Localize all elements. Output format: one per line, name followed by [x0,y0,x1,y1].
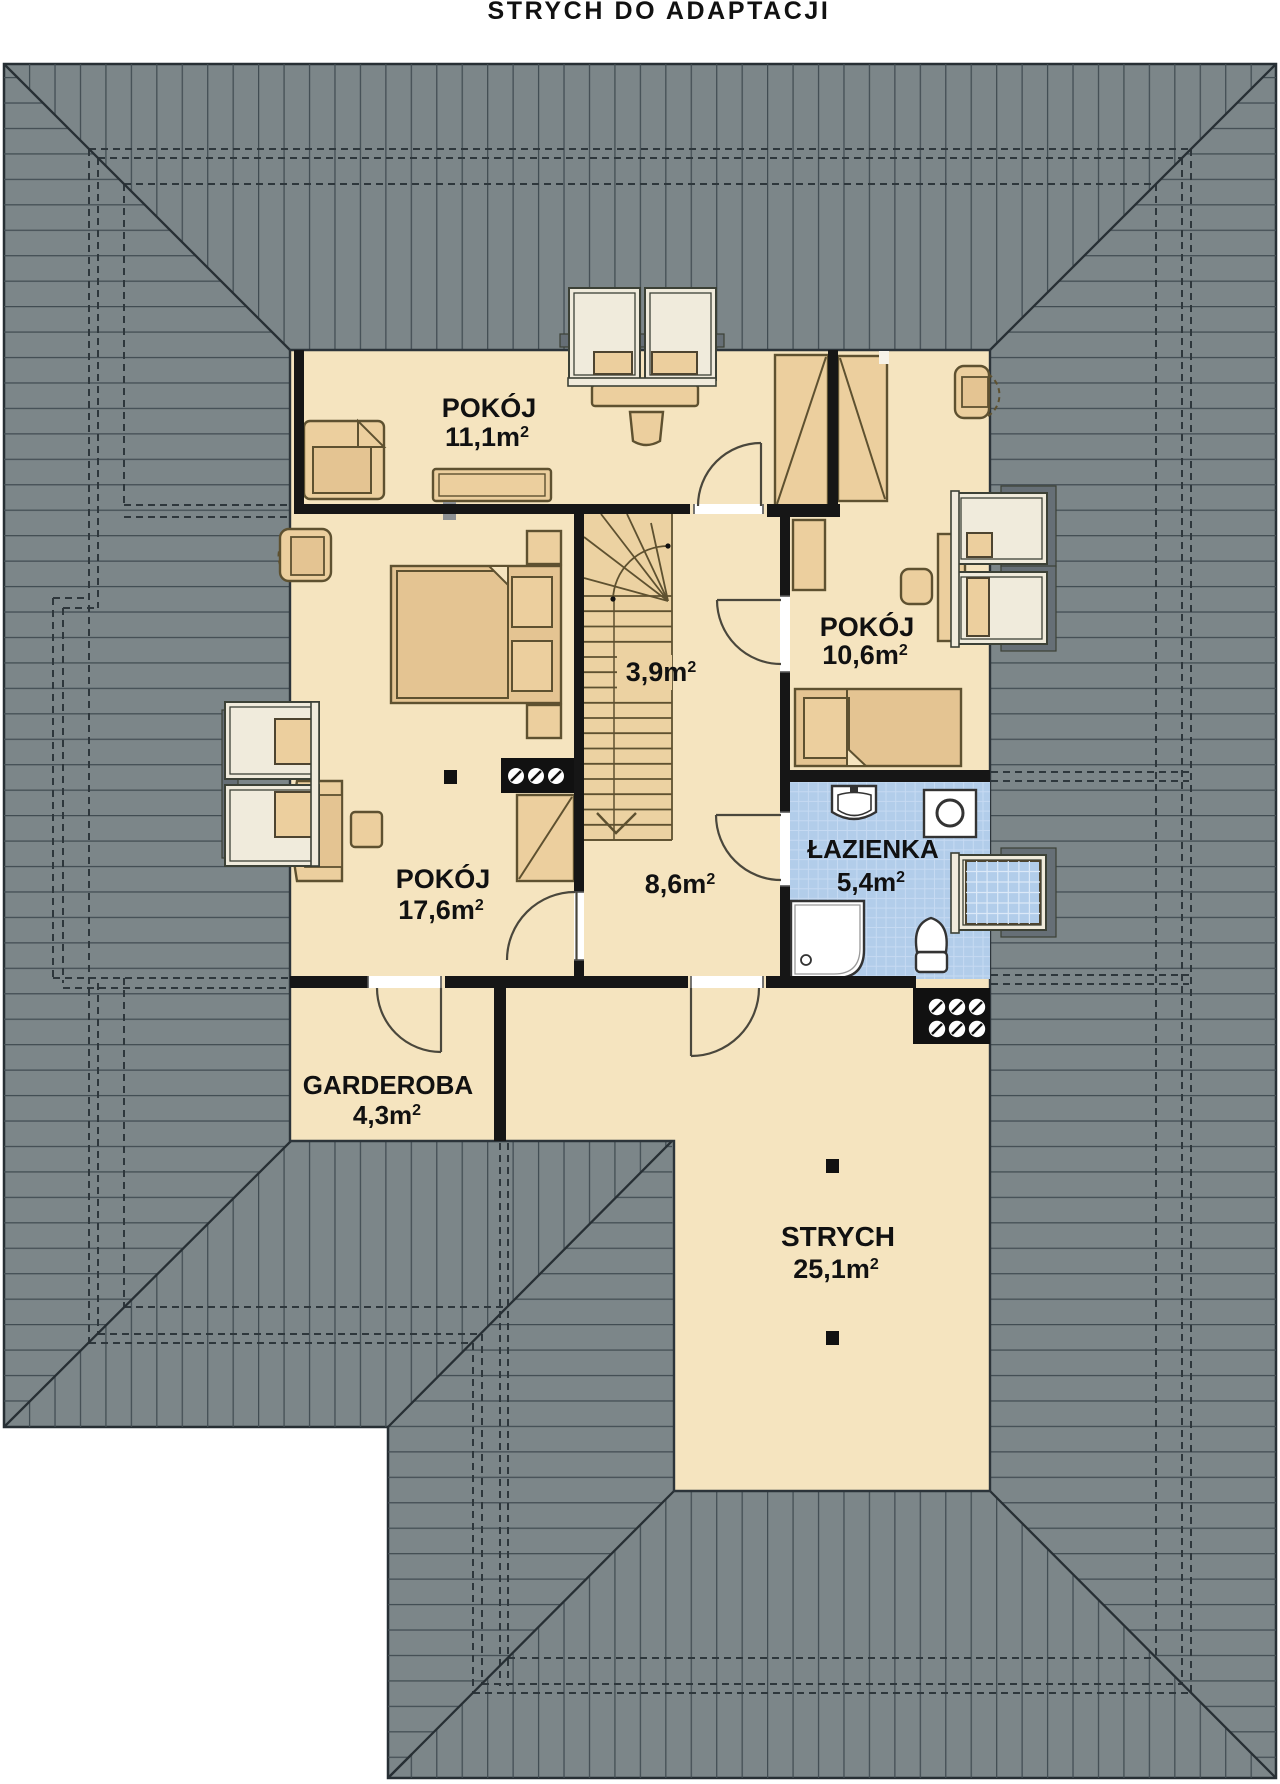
svg-text:5,4m2: 5,4m2 [837,867,905,897]
svg-text:STRYCH DO ADAPTACJI: STRYCH DO ADAPTACJI [488,0,831,25]
svg-text:STRYCH: STRYCH [781,1221,895,1252]
svg-text:4,3m2: 4,3m2 [353,1100,421,1130]
svg-text:3,9m2: 3,9m2 [626,657,697,687]
svg-text:ŁAZIENKA: ŁAZIENKA [807,834,939,864]
svg-text:GARDEROBA: GARDEROBA [303,1070,474,1100]
svg-text:POKÓJ: POKÓJ [442,392,537,423]
svg-text:POKÓJ: POKÓJ [820,611,915,642]
svg-text:11,1m2: 11,1m2 [445,422,529,452]
svg-text:17,6m2: 17,6m2 [398,895,484,925]
svg-text:25,1m2: 25,1m2 [793,1254,879,1284]
svg-text:POKÓJ: POKÓJ [396,863,491,894]
svg-text:8,6m2: 8,6m2 [645,869,716,899]
svg-text:10,6m2: 10,6m2 [822,640,908,670]
